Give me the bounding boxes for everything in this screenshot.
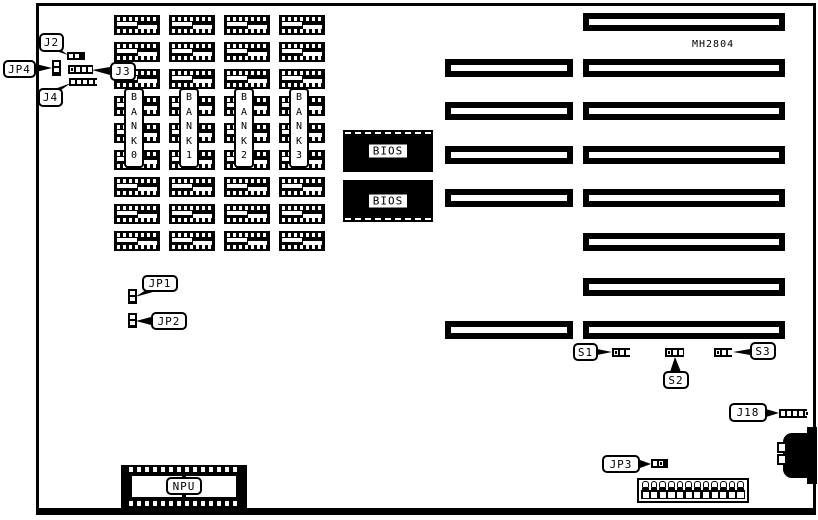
motherboard-diagram: MH2804 B A N K 0 B A N K 1 B A N K 2 B A… [0, 0, 818, 520]
keyboard-connector-pin-upper [777, 442, 787, 453]
s1-header [612, 348, 630, 357]
expansion-slot-long-2 [583, 59, 785, 77]
power-connector [637, 478, 749, 503]
memory-chip-bank3 [279, 15, 325, 35]
expansion-slot-short-3 [445, 146, 573, 164]
memory-chip-bank2 [224, 231, 270, 251]
memory-chip-bank1 [169, 177, 215, 197]
bank-1-label: B A N K 1 [179, 88, 199, 168]
jp1-jumper [128, 289, 137, 304]
expansion-slot-long-5 [583, 189, 785, 207]
bank-2-label: B A N K 2 [234, 88, 254, 168]
bank-0-label: B A N K 0 [124, 88, 144, 168]
power-pin [711, 481, 718, 490]
motherboard-outline: MH2804 [36, 3, 816, 515]
jp4-label: JP4 [3, 60, 36, 78]
jp2-label: JP2 [151, 312, 187, 330]
jp2-jumper [128, 313, 137, 328]
memory-chip-bank0 [114, 15, 160, 35]
keyboard-din-connector [783, 433, 816, 478]
s1-label: S1 [573, 343, 598, 361]
power-socket-hole [651, 492, 657, 498]
expansion-slot-short-1 [445, 59, 573, 77]
power-socket-hole [677, 492, 683, 498]
memory-chip-bank1 [169, 69, 215, 89]
expansion-slot-long-1 [583, 13, 785, 31]
power-pin [659, 481, 666, 490]
bios-chip-2: BIOS [343, 180, 433, 222]
memory-chip-bank2 [224, 15, 270, 35]
power-socket-hole [729, 492, 735, 498]
jp3-header [651, 459, 668, 468]
npu-label: NPU [166, 477, 202, 495]
memory-chip-bank0 [114, 204, 160, 224]
keyboard-connector-pin-lower [777, 454, 787, 465]
board-model-label: MH2804 [692, 39, 734, 50]
j2-header [67, 52, 85, 60]
memory-chip-bank2 [224, 69, 270, 89]
memory-chip-bank0 [114, 231, 160, 251]
memory-chip-bank2 [224, 42, 270, 62]
power-pin [642, 481, 649, 490]
power-socket-hole [712, 492, 718, 498]
power-pin [668, 481, 675, 490]
memory-chip-bank1 [169, 231, 215, 251]
power-connector-pin-row [642, 481, 744, 490]
power-pin [729, 481, 736, 490]
expansion-slot-long-8 [583, 321, 785, 339]
memory-chip-bank3 [279, 69, 325, 89]
memory-chip-bank0 [114, 42, 160, 62]
s2-header [665, 348, 684, 357]
expansion-slot-long-3 [583, 102, 785, 120]
power-socket-hole [668, 492, 674, 498]
memory-chip-bank1 [169, 42, 215, 62]
expansion-slot-short-4 [445, 189, 573, 207]
power-pin [685, 481, 692, 490]
j2-label: J2 [39, 33, 64, 52]
memory-chip-bank2 [224, 204, 270, 224]
memory-chip-bank3 [279, 204, 325, 224]
s3-header [714, 348, 732, 357]
expansion-slot-long-4 [583, 146, 785, 164]
memory-chip-bank3 [279, 231, 325, 251]
power-connector-socket-row [641, 490, 745, 499]
bank-3-label: B A N K 3 [289, 88, 309, 168]
memory-chip-bank0 [114, 177, 160, 197]
s2-label: S2 [663, 371, 689, 389]
j18-header [779, 409, 807, 418]
jp4-jumper [52, 60, 61, 76]
power-socket-hole [703, 492, 709, 498]
bios-chip-2-label: BIOS [367, 193, 409, 210]
power-socket-hole [694, 492, 700, 498]
j3-header [68, 65, 93, 74]
bios-chip-1-label: BIOS [367, 143, 409, 160]
memory-chip-bank3 [279, 42, 325, 62]
j4-header [69, 78, 97, 86]
j4-label: J4 [38, 88, 63, 107]
memory-chip-bank1 [169, 15, 215, 35]
bios-chip-1: BIOS [343, 130, 433, 172]
memory-chip-bank2 [224, 177, 270, 197]
s3-label: S3 [750, 342, 776, 360]
memory-chip-bank1 [169, 204, 215, 224]
power-pin [720, 481, 727, 490]
power-socket-hole [660, 492, 666, 498]
keyboard-connector-flange [807, 427, 817, 484]
power-pin [703, 481, 710, 490]
expansion-slot-short-5 [445, 321, 573, 339]
expansion-slot-long-7 [583, 278, 785, 296]
power-pin [651, 481, 658, 490]
expansion-slot-short-2 [445, 102, 573, 120]
power-pin [694, 481, 701, 490]
memory-chip-bank3 [279, 177, 325, 197]
power-socket-hole [643, 492, 649, 498]
power-pin [737, 481, 744, 490]
j18-label: J18 [729, 403, 767, 422]
power-socket-hole [686, 492, 692, 498]
power-socket-hole [720, 492, 726, 498]
power-pin [677, 481, 684, 490]
expansion-slot-long-6 [583, 233, 785, 251]
power-socket-hole [737, 492, 743, 498]
jp3-label: JP3 [602, 455, 640, 473]
jp1-label: JP1 [142, 275, 178, 292]
j3-label: J3 [110, 62, 136, 81]
